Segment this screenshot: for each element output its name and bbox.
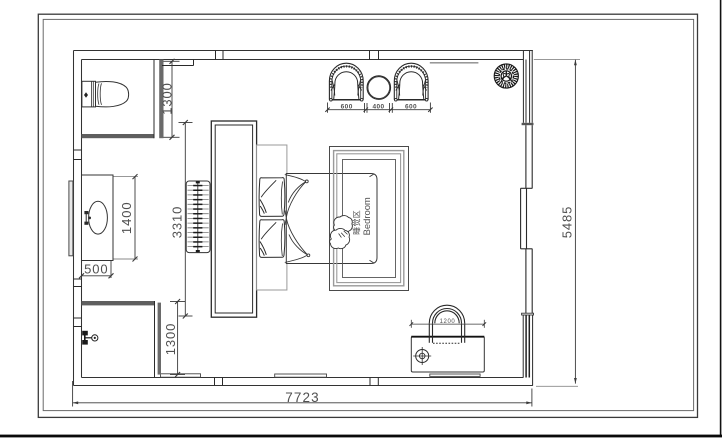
svg-text:7723: 7723 <box>285 390 319 405</box>
svg-text:1300: 1300 <box>163 323 178 356</box>
svg-text:1400: 1400 <box>119 202 134 235</box>
svg-text:1300: 1300 <box>160 82 175 115</box>
svg-text:400: 400 <box>372 104 384 111</box>
svg-text:Bedroom: Bedroom <box>361 197 372 235</box>
svg-text:600: 600 <box>341 104 353 111</box>
svg-text:600: 600 <box>405 104 417 111</box>
svg-text:5485: 5485 <box>559 206 574 239</box>
svg-text:500: 500 <box>84 262 108 277</box>
svg-text:1200: 1200 <box>440 319 456 325</box>
svg-text:3310: 3310 <box>170 206 185 239</box>
svg-text:睡觉区: 睡觉区 <box>351 210 361 235</box>
